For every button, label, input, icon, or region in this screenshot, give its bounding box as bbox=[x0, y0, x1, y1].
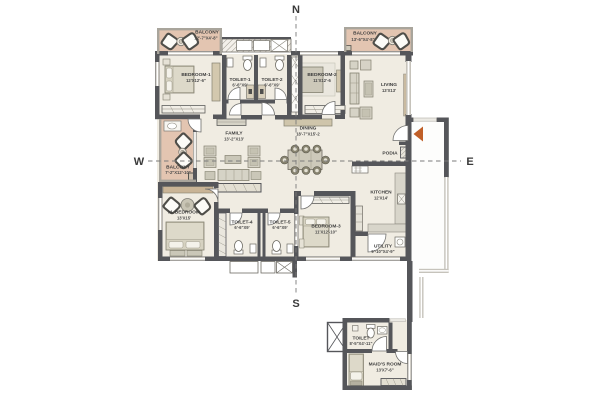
svg-text:PODIA: PODIA bbox=[382, 151, 398, 157]
svg-text:12'X14': 12'X14' bbox=[374, 196, 388, 201]
svg-text:13'X7'-6": 13'X7'-6" bbox=[376, 368, 393, 373]
svg-text:E: E bbox=[466, 156, 473, 168]
svg-text:W: W bbox=[134, 156, 145, 168]
svg-text:13'X15': 13'X15' bbox=[177, 216, 191, 221]
svg-text:6'-6"X9': 6'-6"X9' bbox=[264, 83, 279, 88]
svg-text:13'-6"X4'-8": 13'-6"X4'-8" bbox=[351, 37, 374, 42]
svg-text:18'-7"X15'-2: 18'-7"X15'-2 bbox=[296, 132, 320, 137]
svg-text:13'-2"X13': 13'-2"X13' bbox=[224, 137, 244, 142]
svg-text:12'-7"X4'-8": 12'-7"X4'-8" bbox=[194, 36, 217, 41]
svg-text:7'-2"X12'-10": 7'-2"X12'-10" bbox=[165, 170, 191, 175]
svg-text:N: N bbox=[292, 4, 300, 16]
svg-text:6'-6"X9': 6'-6"X9' bbox=[234, 225, 249, 230]
svg-text:11'X12'-6: 11'X12'-6 bbox=[313, 78, 331, 83]
svg-text:8'-5"X4'-11": 8'-5"X4'-11" bbox=[350, 341, 373, 346]
svg-text:BALCONY: BALCONY bbox=[353, 31, 378, 37]
svg-text:9'-10"X4'-9": 9'-10"X4'-9" bbox=[371, 249, 394, 254]
svg-text:6'-6"X9': 6'-6"X9' bbox=[272, 225, 287, 230]
svg-text:6'-6"X9': 6'-6"X9' bbox=[232, 83, 247, 88]
svg-text:11'X12'-10": 11'X12'-10" bbox=[315, 230, 337, 235]
svg-text:S: S bbox=[292, 298, 299, 310]
svg-text:13'X13': 13'X13' bbox=[382, 88, 396, 93]
svg-text:12'X12'-6": 12'X12'-6" bbox=[186, 78, 206, 83]
